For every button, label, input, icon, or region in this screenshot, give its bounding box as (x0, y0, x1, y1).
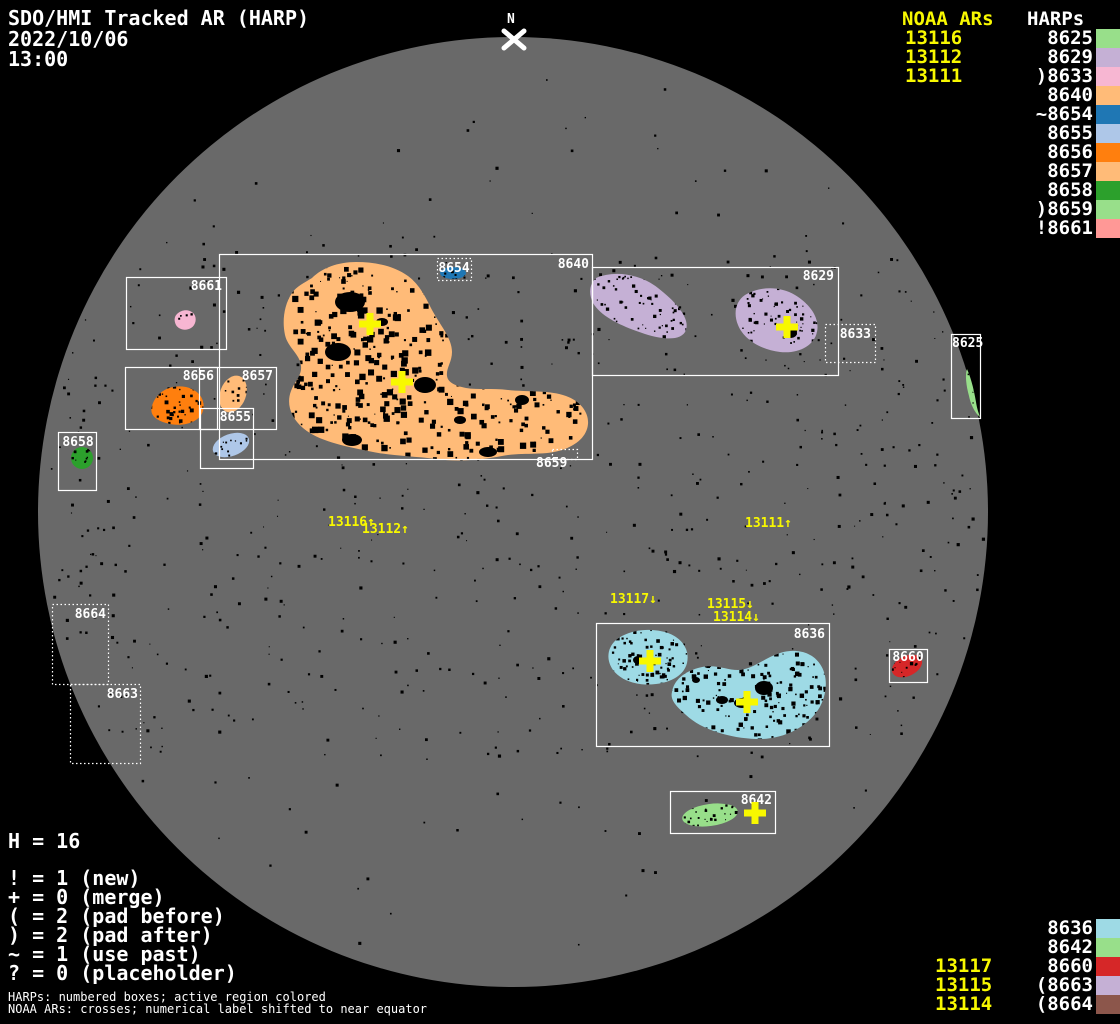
noaa-shifted-label: 13114↓ (713, 610, 760, 625)
noaa-shifted-label: 13111↑ (745, 516, 792, 531)
harp-color-swatch (1096, 29, 1120, 48)
symbol-legend: ! = 1 (new)+ = 0 (merge)( = 2 (pad befor… (8, 869, 237, 983)
harp-box-label-8633: 8633 (840, 327, 871, 342)
harps-top-swatches (1096, 29, 1120, 238)
harp-box-label-8629: 8629 (803, 269, 834, 284)
harp-color-swatch (1096, 995, 1120, 1014)
harp-color-swatch (1096, 162, 1120, 181)
harps-bottom-list: 863686428660(8663(8664 (996, 919, 1093, 1014)
harp-color-swatch (1096, 105, 1120, 124)
harp-box-label-8660: 8660 (892, 650, 923, 665)
footnote-noaa: NOAA ARs: crosses; numerical label shift… (8, 1003, 427, 1015)
solar-disk (38, 37, 988, 987)
harp-box-label-8654: 8654 (438, 261, 469, 276)
active-region-8658 (71, 447, 93, 469)
harp-legend-item: (8664 (996, 995, 1093, 1014)
harp-color-swatch (1096, 976, 1120, 995)
noaa-shifted-label: 13117↓ (610, 592, 657, 607)
harp-color-swatch (1096, 919, 1120, 938)
harp-count-line: H = 16 (8, 831, 80, 851)
noaa-ars-top-list: 131161311213111 (905, 29, 962, 86)
harp-box-label-8625: 8625 (952, 336, 983, 351)
noaa-ar-item: 13114 (935, 995, 992, 1014)
harp-color-swatch (1096, 200, 1120, 219)
harp-color-swatch (1096, 957, 1120, 976)
harp-box-label-8657: 8657 (242, 369, 273, 384)
harps-bottom-swatches (1096, 919, 1120, 1014)
harp-color-swatch (1096, 67, 1120, 86)
harp-color-swatch (1096, 86, 1120, 105)
harp-box-label-8664: 8664 (75, 607, 106, 622)
symbol-legend-line: ? = 0 (placeholder) (8, 964, 237, 983)
harp-color-swatch (1096, 48, 1120, 67)
harp-box-label-8663: 8663 (107, 687, 138, 702)
sdo-hmi-harp-plot: 8661864086568657865586588629863386258664… (0, 0, 1120, 1024)
harp-color-swatch (1096, 143, 1120, 162)
harp-box-label-8640: 8640 (558, 257, 589, 272)
harp-color-swatch (1096, 219, 1120, 238)
harp-color-swatch (1096, 181, 1120, 200)
noaa-ars-bottom-list: 131171311513114 (935, 957, 992, 1014)
north-marker-label: N (507, 12, 515, 27)
harp-box-label-8656: 8656 (183, 369, 214, 384)
noaa-ar-item: 13111 (905, 67, 962, 86)
time-label: 13:00 (8, 49, 68, 69)
harp-box-label-8661: 8661 (191, 279, 222, 294)
harps-top-list: 86258629)86338640~86548655865686578658)8… (996, 29, 1093, 238)
noaa-shifted-label: 13112↑ (362, 522, 409, 537)
page-title: SDO/HMI Tracked AR (HARP) (8, 8, 309, 28)
harp-color-swatch (1096, 124, 1120, 143)
harp-color-swatch (1096, 938, 1120, 957)
harp-box-label-8658: 8658 (62, 435, 93, 450)
harp-box-label-8636: 8636 (794, 627, 825, 642)
harp-box-label-8659: 8659 (536, 456, 567, 471)
harp-box-label-8655: 8655 (220, 410, 251, 425)
date-label: 2022/10/06 (8, 29, 128, 49)
harp-legend-item: !8661 (996, 219, 1093, 238)
